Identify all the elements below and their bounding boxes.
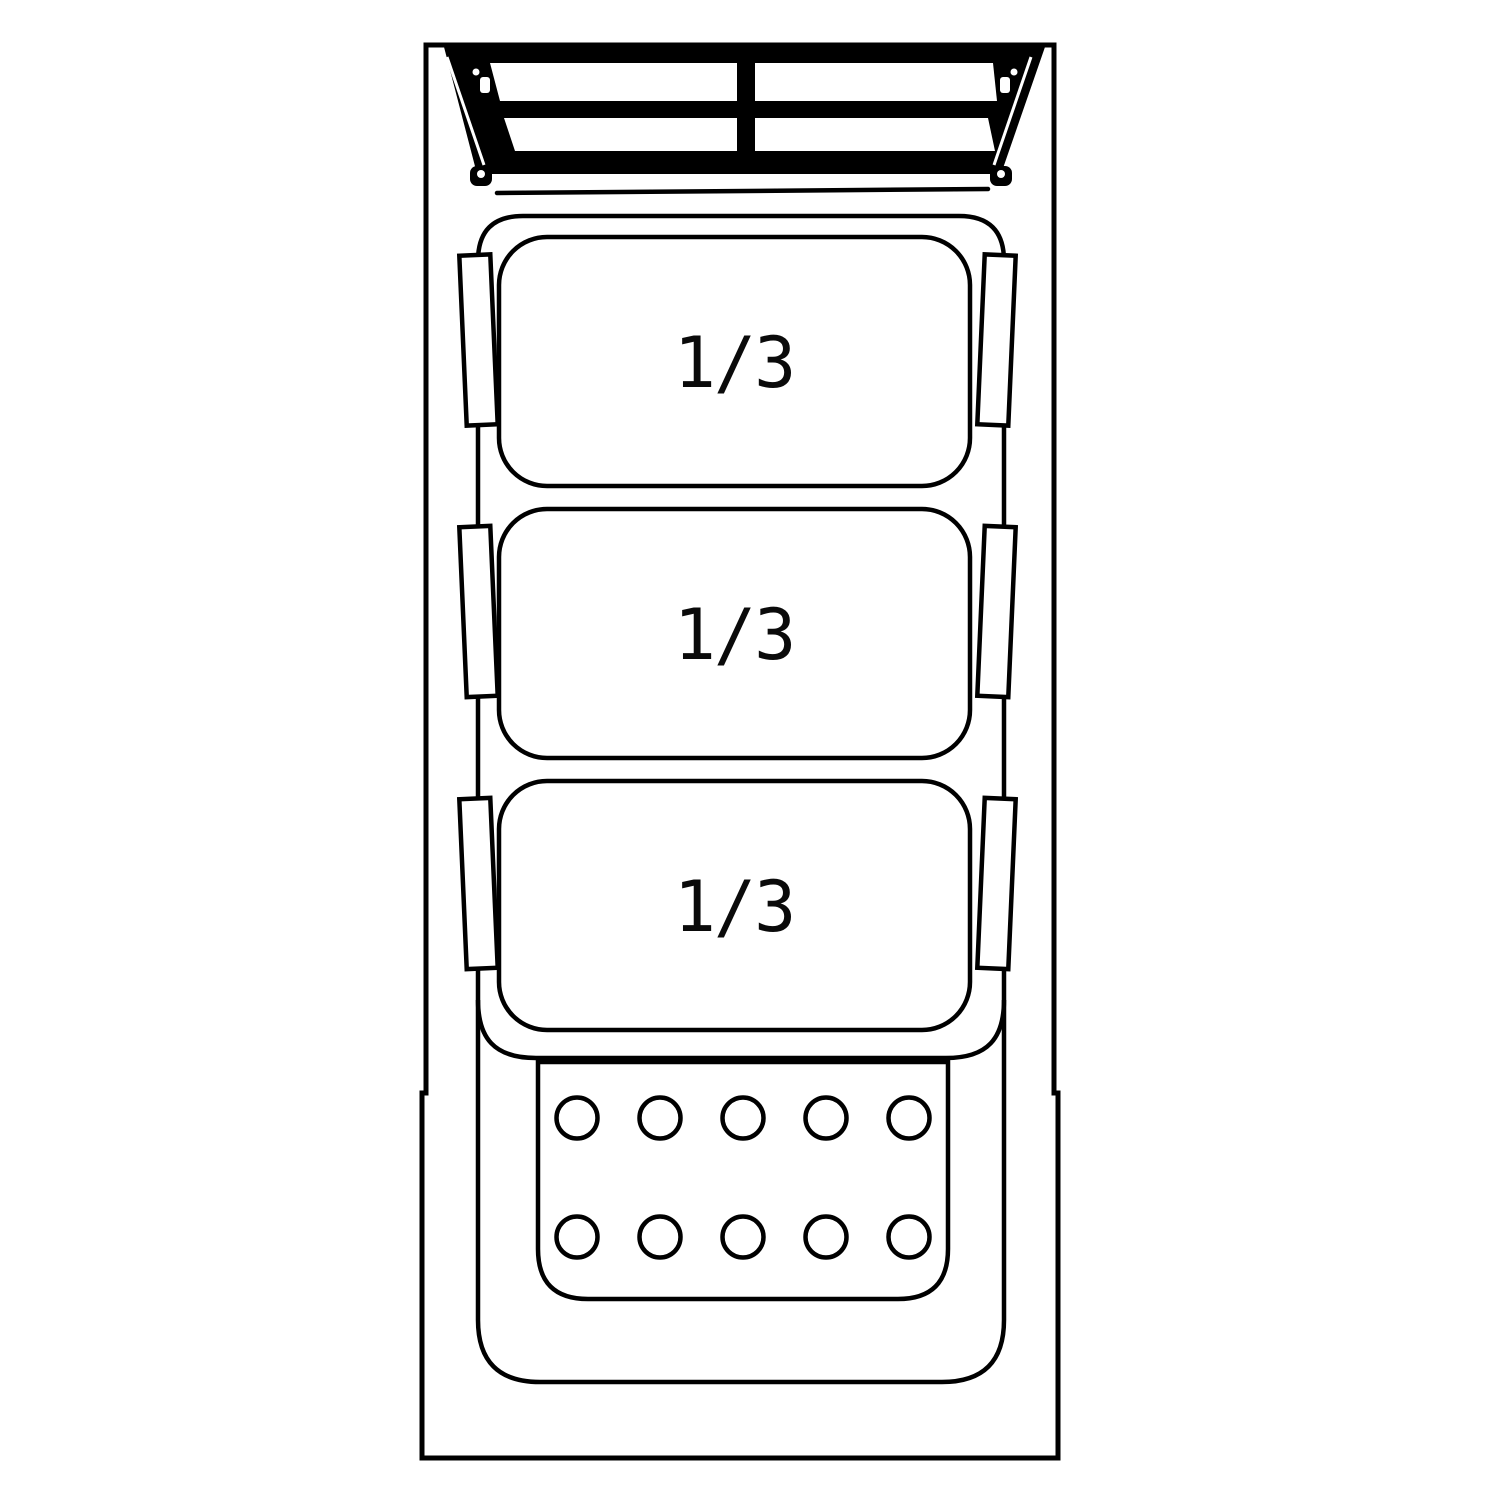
pan3-clip-left (459, 798, 497, 969)
grille-slot-bottom-right (755, 118, 995, 151)
pan-3-label: 1/3 (674, 866, 794, 948)
pan2-clip-left (459, 526, 497, 697)
drain-hole (889, 1217, 930, 1258)
pan-2-label: 1/3 (674, 594, 794, 676)
grille-foot-dot-right (997, 170, 1005, 178)
grille-hook-right (1000, 77, 1010, 93)
drain-hole (557, 1098, 598, 1139)
grille-hook-left (480, 77, 490, 93)
grille-hook-dot-right (1011, 69, 1018, 76)
pan-1-label: 1/3 (674, 322, 794, 404)
drain-hole (806, 1098, 847, 1139)
grille-slot-bottom-left (504, 118, 737, 151)
drain-hole (640, 1098, 681, 1139)
drain-hole (806, 1217, 847, 1258)
grille-slot-top-left (490, 63, 737, 101)
pan1-clip-left (459, 254, 497, 425)
pan2-clip-right (977, 526, 1015, 697)
background (0, 0, 1500, 1500)
drain-hole (723, 1217, 764, 1258)
pan3-clip-right (977, 798, 1015, 969)
grille-hook-dot-left (473, 69, 480, 76)
drain-hole (640, 1217, 681, 1258)
drain-hole (557, 1217, 598, 1258)
drain-hole (889, 1098, 930, 1139)
grille-foot-dot-left (477, 170, 485, 178)
vent-grille (444, 47, 1045, 186)
drawing-canvas: 1/3 1/3 1/3 (0, 0, 1500, 1500)
drain-hole (723, 1098, 764, 1139)
pan1-clip-right (977, 254, 1015, 425)
equipment-plan-drawing: 1/3 1/3 1/3 (0, 0, 1500, 1500)
grille-slot-top-right (755, 63, 997, 101)
